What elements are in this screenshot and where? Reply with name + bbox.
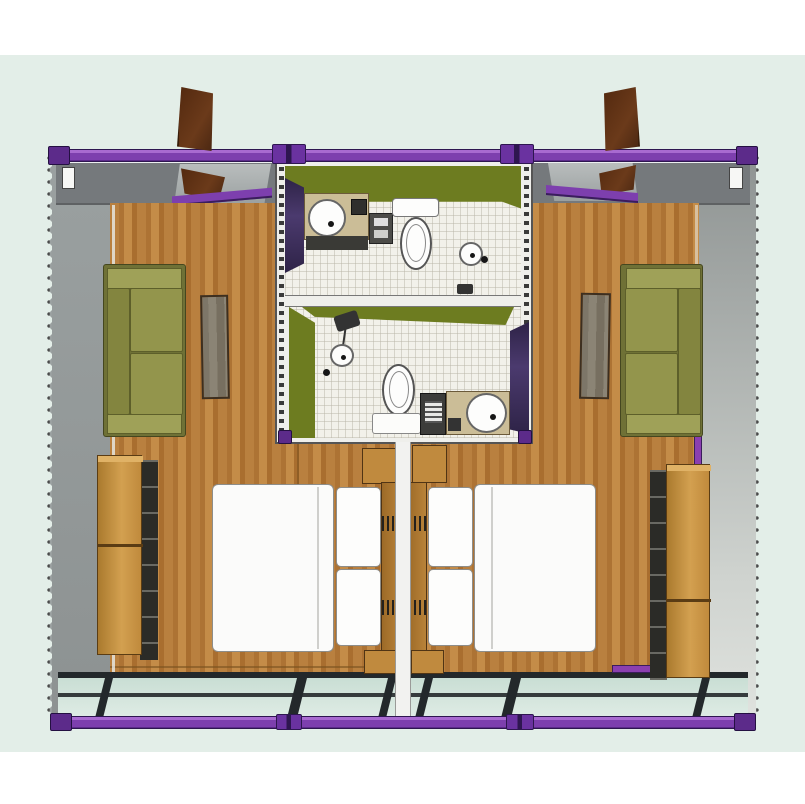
- right-rug: [579, 293, 611, 400]
- lower-cistern-shelf: [372, 413, 421, 434]
- drain-hole: [341, 355, 346, 360]
- sofa-armrest: [107, 268, 182, 289]
- right-entry-door-open: [604, 87, 640, 151]
- shelf-contents: [374, 218, 388, 226]
- left-wardrobe: [97, 455, 142, 655]
- right-nightstand: [412, 445, 447, 483]
- right-bed-foot-bench: [411, 650, 444, 674]
- wardrobe-top-edge: [667, 465, 711, 471]
- joint-connector: [272, 144, 306, 164]
- left-bed-foot-bench: [364, 650, 397, 674]
- right-bed-mattress: [474, 484, 596, 652]
- headboard-vent: [409, 516, 426, 531]
- upper-floor-drain: [481, 256, 488, 263]
- washer-door: [425, 401, 442, 423]
- bathroom-lower-side-wall: [289, 307, 315, 438]
- unit-divider-wall: [395, 442, 411, 718]
- module-corner-post: [518, 430, 532, 444]
- sofa-backrest: [678, 288, 701, 415]
- upper-mirror: [351, 199, 367, 215]
- right-window-slit: [729, 167, 743, 189]
- bathroom-upper-joint-wall: [285, 178, 304, 273]
- left-floor-seam: [110, 666, 396, 668]
- left-bed-mattress: [212, 484, 334, 652]
- upper-shower-set: [457, 284, 473, 294]
- sofa-seat-cushion: [625, 353, 678, 415]
- sofa-seat-cushion: [130, 288, 183, 352]
- top-frame-beam: [56, 149, 750, 162]
- left-bed-pillow: [336, 487, 381, 567]
- sofa-armrest: [107, 414, 182, 434]
- shelf-contents: [374, 230, 388, 238]
- sofa-seat-cushion: [625, 288, 678, 352]
- toilet-bowl: [406, 224, 426, 262]
- left-entry-door-open: [177, 87, 213, 151]
- basin-drain: [490, 414, 496, 420]
- sheet-fold: [317, 487, 319, 649]
- left-sofa: [103, 264, 186, 437]
- lower-washing-machine: [420, 393, 446, 435]
- bathroom-module: [275, 157, 533, 444]
- headboard-vent: [409, 600, 426, 615]
- upper-shelf-unit: [369, 213, 393, 244]
- upper-toilet: [400, 217, 432, 270]
- joint-connector: [276, 714, 302, 730]
- left-window-slit: [62, 167, 75, 189]
- corner-casting: [734, 713, 756, 731]
- right-wardrobe-side: [650, 470, 667, 680]
- lower-shower-drain: [330, 344, 354, 367]
- corner-casting: [736, 146, 758, 165]
- left-wardrobe-side: [140, 460, 158, 660]
- corner-casting: [48, 146, 70, 165]
- basin-drain: [328, 221, 334, 227]
- sofa-armrest: [626, 268, 701, 289]
- upper-vanity-cabinet: [306, 236, 368, 250]
- right-wardrobe: [666, 464, 710, 678]
- wardrobe-split: [98, 544, 143, 547]
- toilet-bowl: [389, 371, 409, 408]
- sofa-armrest: [626, 414, 701, 434]
- corner-casting: [50, 713, 72, 731]
- upper-vanity-basin: [308, 199, 346, 237]
- lower-toilet: [382, 364, 415, 416]
- bathroom-lower-joint-wall: [510, 322, 529, 434]
- wardrobe-top-edge: [98, 456, 143, 462]
- right-bed-pillow: [428, 487, 473, 567]
- upper-shower-drain: [459, 242, 483, 266]
- right-bed-pillow: [428, 569, 473, 646]
- sofa-backrest: [107, 288, 130, 415]
- lower-floor-drain: [323, 369, 330, 376]
- sheet-fold: [491, 487, 493, 649]
- right-sofa: [620, 264, 703, 437]
- drain-hole: [470, 253, 475, 258]
- module-corner-post: [278, 430, 292, 444]
- left-nightstand: [362, 448, 397, 484]
- bottom-frame-beam: [52, 716, 754, 729]
- module-edge-corrugation: [279, 167, 284, 435]
- wardrobe-split: [667, 599, 711, 602]
- sofa-seat-cushion: [130, 353, 183, 415]
- joint-connector: [506, 714, 534, 730]
- bathroom-divider-band: [285, 295, 521, 307]
- joint-connector: [500, 144, 534, 164]
- left-bed-pillow: [336, 569, 381, 646]
- lower-faucet-box: [448, 418, 461, 431]
- lower-vanity-basin: [466, 393, 507, 433]
- floor-plan-render: [0, 0, 805, 804]
- left-rug: [200, 295, 230, 399]
- upper-air-conditioner: [392, 198, 439, 217]
